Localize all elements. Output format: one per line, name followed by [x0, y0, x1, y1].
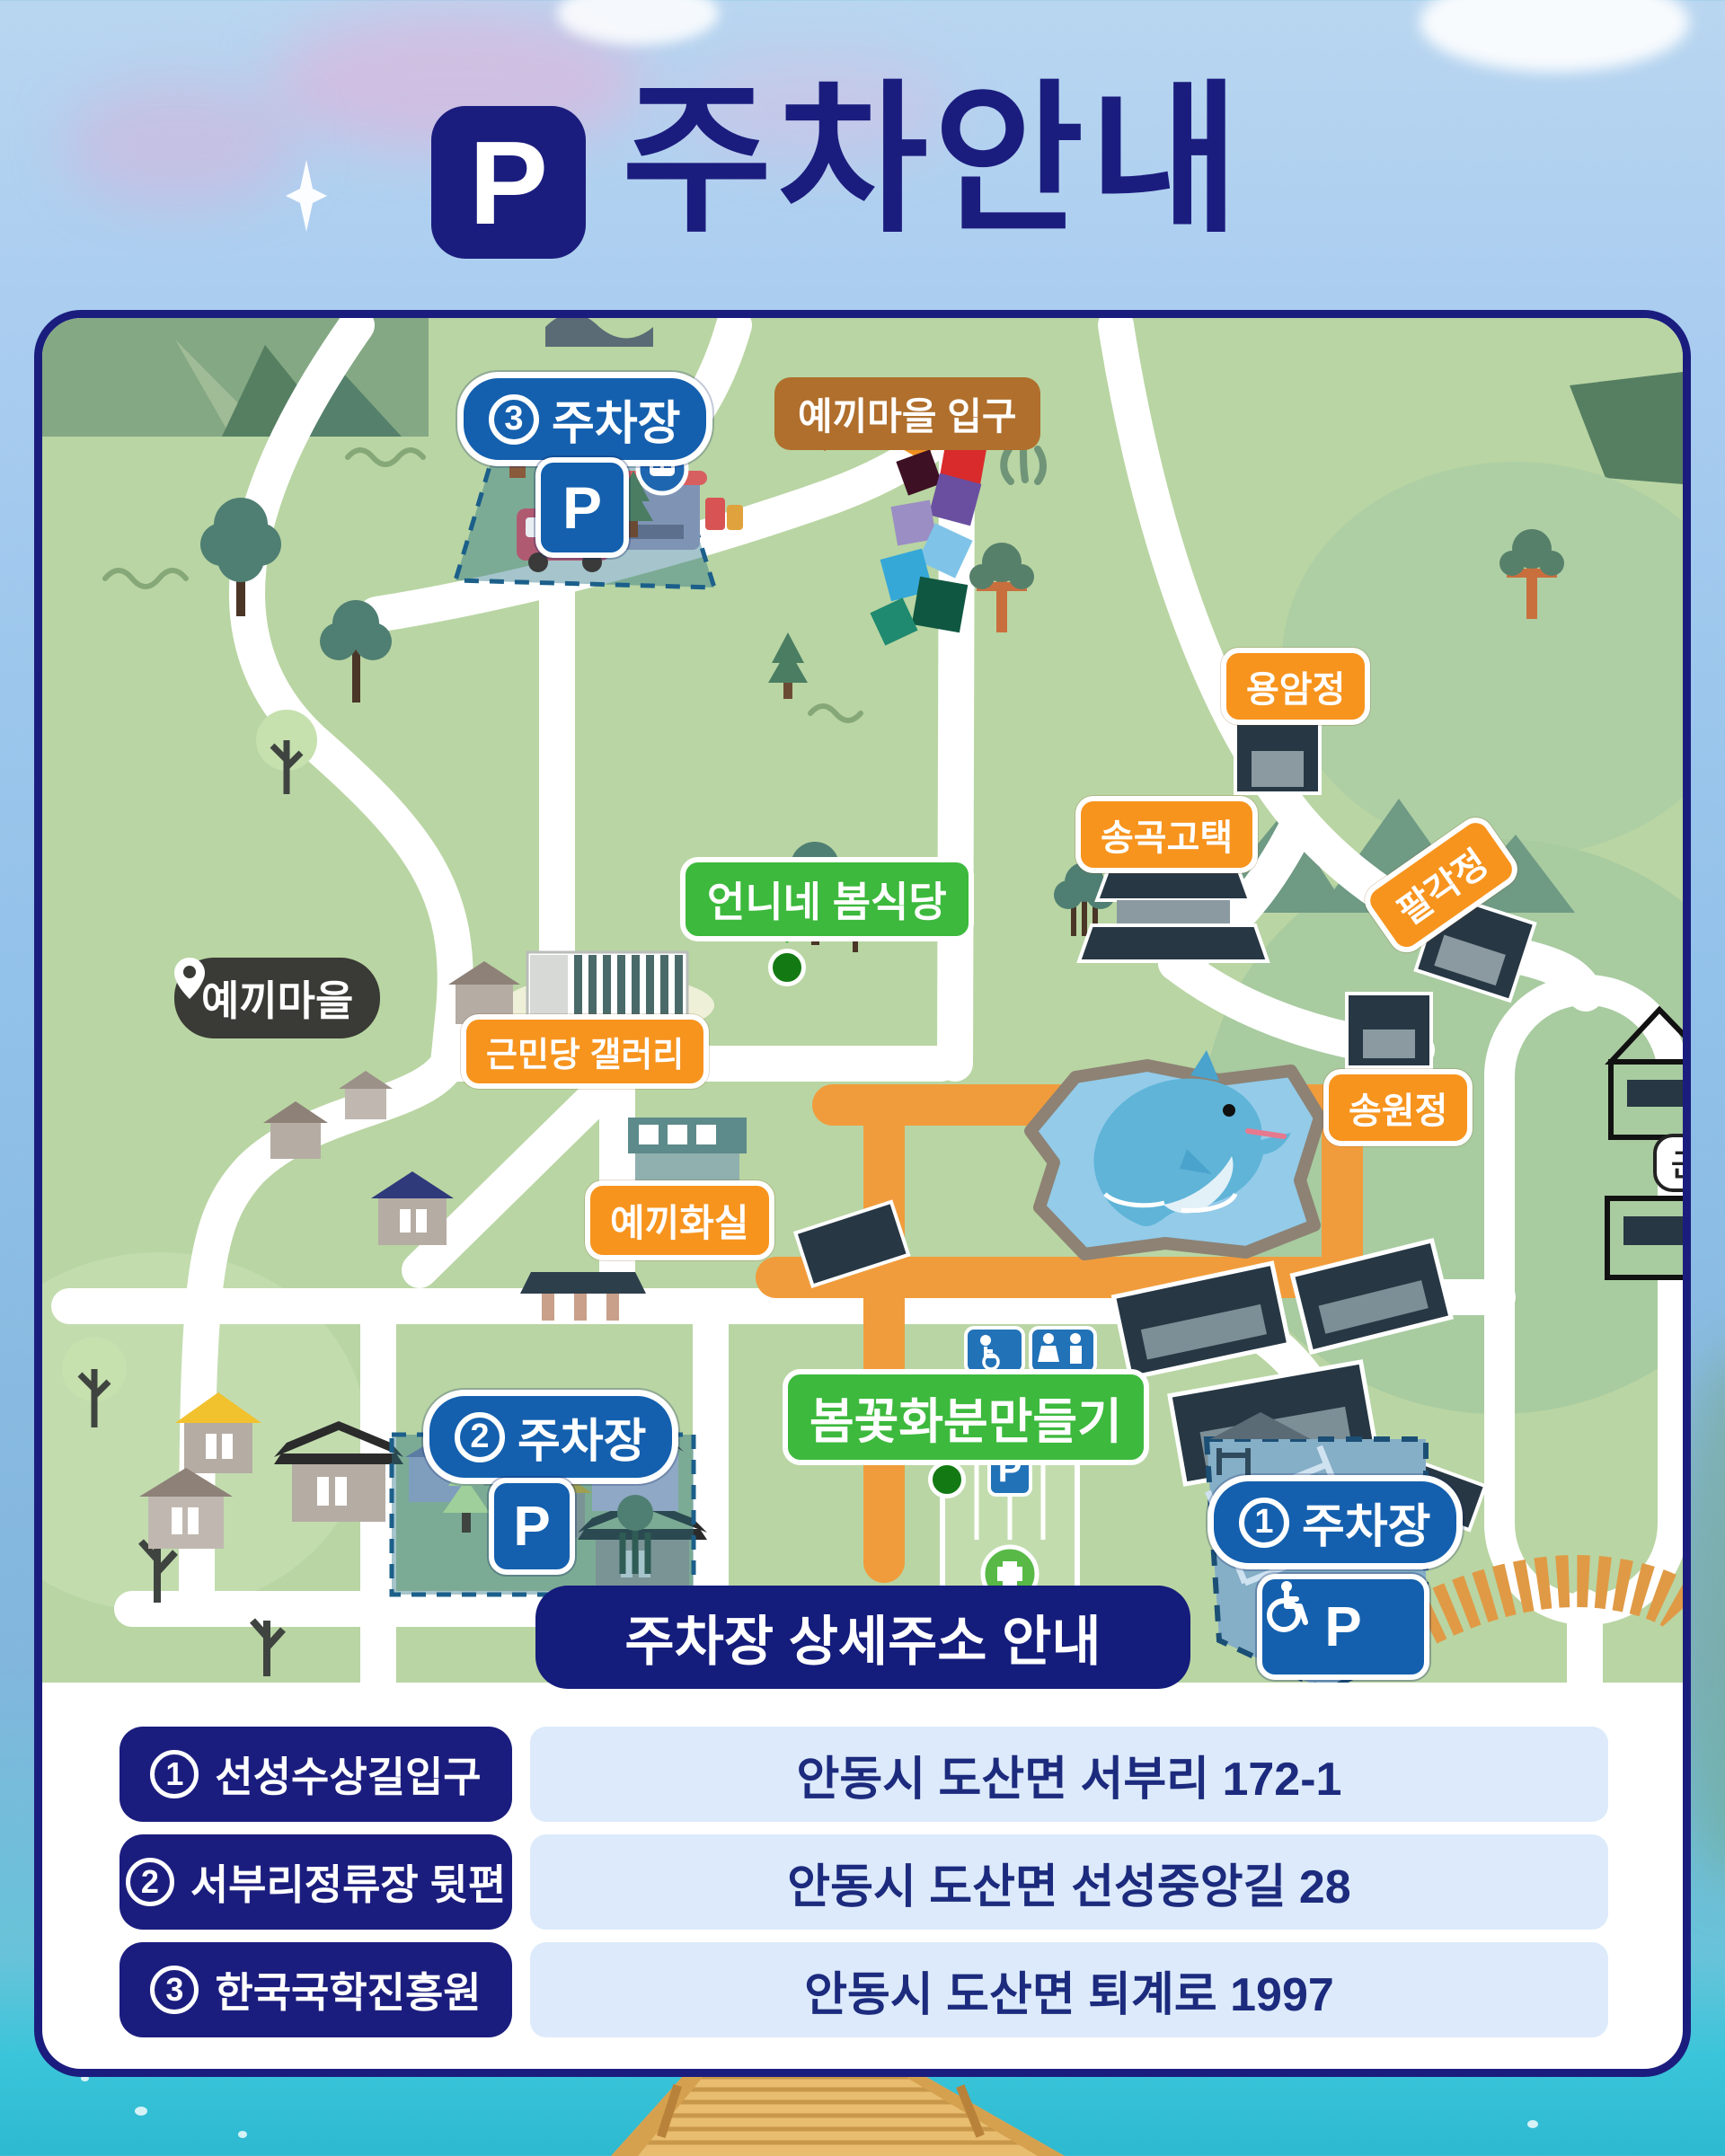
address-banner-title: 주차장 상세주소 안내 [535, 1586, 1190, 1689]
yekkihwasil-building [628, 1118, 747, 1184]
boardwalk [1408, 1581, 1683, 1630]
cloud [557, 0, 719, 45]
songwonjeong-building [1347, 994, 1431, 1067]
page-title: 주차안내 [622, 70, 1245, 250]
parking-3-label: 3 주차장 [457, 372, 712, 466]
parking-3-p-sign-icon: P [535, 457, 629, 558]
row-number-badge: 3 [150, 1966, 199, 2014]
parking-2-label: 2 주차장 [423, 1390, 678, 1484]
water-sparkle [135, 2107, 147, 2116]
water-sparkle [238, 2131, 247, 2138]
flowerpot-label: 봄꽃화분만들기 [783, 1369, 1149, 1465]
village-pill: 예끼마을 [174, 958, 380, 1038]
sparkle-icon [286, 160, 327, 232]
address-row-value: 안동시 도산면 선성중앙길 28 [530, 1834, 1608, 1930]
address-row: 3 한국국학진흥원 안동시 도산면 퇴계로 1997 [42, 1942, 1691, 2037]
pond [1031, 1050, 1320, 1254]
wheelchair-icon [1262, 1579, 1314, 1635]
location-pin-icon [174, 958, 205, 999]
parking-1-p-sign-icon: P [1257, 1574, 1429, 1680]
address-row: 2 서부리정류장 뒷편 안동시 도산면 선성중앙길 28 [42, 1834, 1691, 1930]
address-row-value: 안동시 도산면 퇴계로 1997 [530, 1942, 1608, 2037]
restroom-signs [966, 1328, 1095, 1373]
restaurant-marker [768, 949, 806, 986]
map-card: P [34, 310, 1691, 2077]
gungwan-label-clipped: 군관 [1653, 1134, 1683, 1192]
page-title-area: P 주차안내 [0, 54, 1725, 269]
village-map: P [42, 318, 1683, 1683]
parking-3-number: 3 [489, 394, 539, 445]
address-row-value: 안동시 도산면 서부리 172-1 [530, 1727, 1608, 1822]
address-row: 1 선성수상길입구 안동시 도산면 서부리 172-1 [42, 1727, 1691, 1822]
address-row-name: 2 서부리정류장 뒷편 [119, 1834, 512, 1930]
restaurant-label: 언니네 봄식당 [680, 857, 974, 941]
flowerpot-marker [928, 1461, 966, 1498]
address-row-name: 1 선성수상길입구 [119, 1727, 512, 1822]
row-number-badge: 2 [126, 1858, 174, 1906]
parking-symbol-icon: P [431, 106, 586, 259]
yongamjeong-label: 용암정 [1221, 648, 1370, 725]
songwonjeong-label: 송원정 [1323, 1069, 1473, 1146]
water-sparkle [1527, 2120, 1538, 2128]
yekkihwasil-label: 예끼화실 [585, 1180, 774, 1260]
parking-2-p-sign-icon: P [489, 1478, 575, 1575]
row-number-badge: 1 [150, 1750, 199, 1798]
parking-1-label: 1 주차장 [1207, 1475, 1463, 1569]
address-row-name: 3 한국국학진흥원 [119, 1942, 512, 2037]
songgok-label: 송곡고택 [1075, 796, 1258, 873]
geunmindang-label: 근민당 갤러리 [461, 1014, 709, 1089]
entrance-label: 예끼마을 입구 [774, 377, 1040, 450]
wooden-pier [557, 2066, 1132, 2156]
